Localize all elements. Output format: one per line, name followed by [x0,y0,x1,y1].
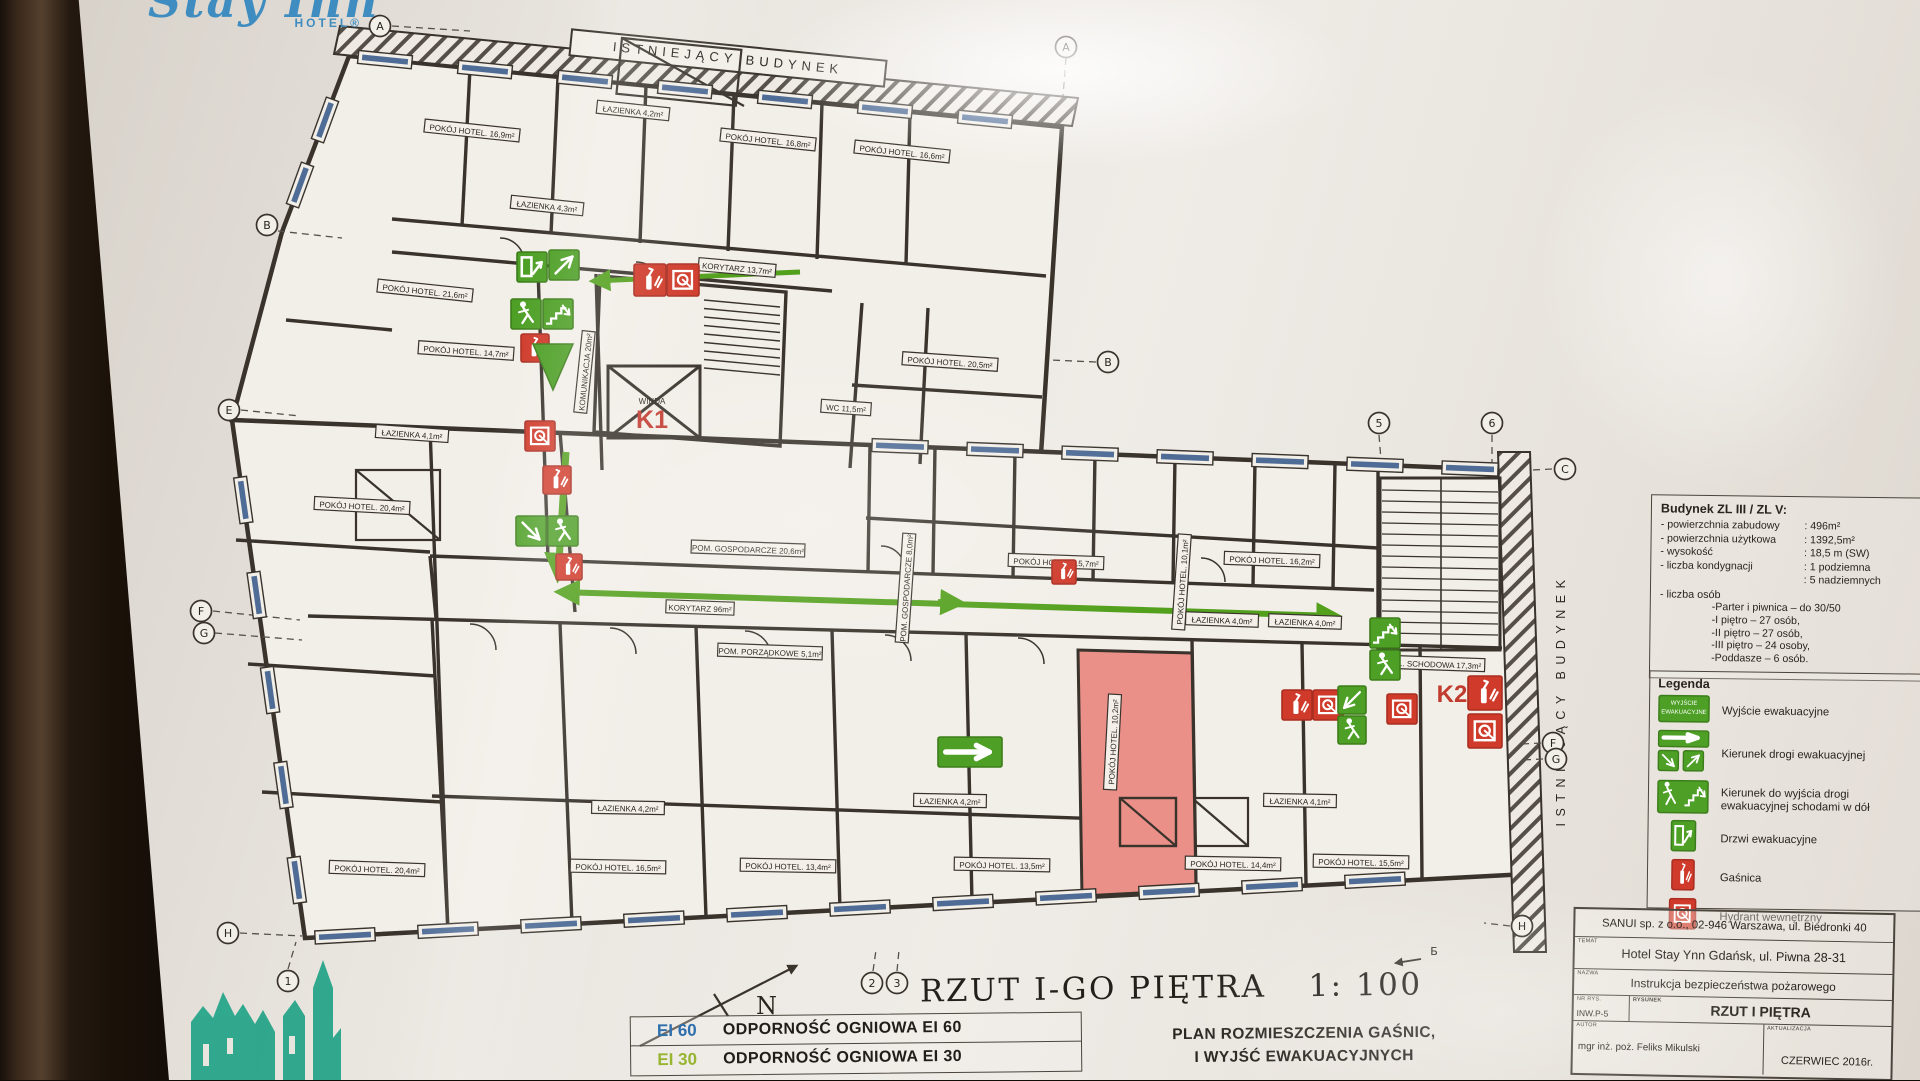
svg-text:ŁAZIENKA 4,1m²: ŁAZIENKA 4,1m² [1269,797,1330,807]
number-field-label: NR RYS. [1577,996,1601,1002]
author-field-label: AUTOR [1576,1022,1597,1028]
grid-axis-bubble: H [1512,916,1533,937]
room-label: POKÓJ HOTEL. 14,4m² [1185,856,1281,871]
direction-arrows-icon [1657,729,1714,779]
legend-item-label: Kierunek do wyjścia drogi ewakuacyjnej s… [1721,787,1917,814]
city-watermark [191,960,341,1080]
fire-resistance-row: EI 60ODPORNOŚĆ OGNIOWA EI 60 [631,1013,1081,1047]
grid-axis-bubble: 5 [1369,413,1390,434]
extinguisher-icon [634,264,666,296]
window-strip [624,911,685,927]
fire-resistance-box: EI 60ODPORNOŚĆ OGNIOWA EI 60EI 30ODPORNO… [630,1012,1083,1077]
hydrant-icon [1387,694,1417,724]
fire-resistance-row: EI 30ODPORNOŚĆ OGNIOWA EI 30 [631,1042,1081,1075]
extinguisher-icon [1656,858,1712,898]
extinguisher-icon [1282,690,1312,720]
svg-text:ŁAZIENKA 4,2m²: ŁAZIENKA 4,2m² [919,797,980,807]
window-strip [1442,461,1498,476]
evac-direction-sign-icon [938,737,1002,767]
svg-text:A: A [1062,41,1070,54]
svg-text:POKÓJ HOTEL. 13,5m²: POKÓJ HOTEL. 13,5m² [959,861,1045,871]
grid-axis-bubble: G [1546,749,1567,770]
photo-of-evacuation-plan: { "colors":{"evac_green":"#4d9f25","alar… [0,0,1920,1080]
title-block: SANUI sp. z o.o., 02-946 Warszawa, ul. B… [1570,907,1895,1081]
fire-resistance-label: ODPORNOŚĆ OGNIOWA EI 60 [723,1019,962,1040]
plan-subtitle-line1: PLAN ROZMIESZCZENIA GAŚNIC, [1158,1021,1450,1047]
exit-man-sign-icon [548,516,578,546]
plan-subtitle: PLAN ROZMIESZCZENIA GAŚNIC, I WYJŚĆ EWAK… [1158,1021,1450,1070]
window-strip [933,894,994,910]
window-strip [872,439,928,454]
existing-building-right-label: ISTNIEJĄCY BUDYNEK [1554,574,1568,827]
svg-text:C: C [1561,463,1569,476]
grid-axis-bubble: 2 [862,973,883,994]
stairwell-k1-label: K1 [636,406,668,434]
building-info-row: : 5 nadziemnych [1660,573,1920,590]
grid-axis-bubble: Б [1430,945,1438,958]
window-strip [1157,450,1213,465]
stairs-down-icon [1657,778,1713,820]
window-strip [1252,454,1308,469]
plan-sheet-paper: ISTNIEJĄCY BUDYNEK ISTNIEJĄCY BUDYNEK [0,0,1920,1080]
doc-field-label: NAZWA [1577,970,1598,976]
svg-text:F: F [198,605,204,618]
room-label: WC 11,5m² [821,399,872,415]
svg-text:6: 6 [1489,417,1496,430]
stairs-down-sign-icon [543,299,573,329]
grid-axis-bubble: 1 [278,971,299,992]
grid-axis-bubble: G [194,623,215,644]
hydrant-icon [525,421,555,451]
evac-door-icon [1656,819,1712,859]
section-marker-arrow [1396,959,1421,963]
evac-direction-sign-icon [1338,686,1366,714]
room-label: POKÓJ HOTEL. 20,4m² [329,860,425,876]
elevator-caption: WINDA [639,397,666,406]
grid-axis-bubble: E [219,400,240,421]
window-strip [830,900,891,916]
floor-title-scale: 1: 100 [1308,966,1423,1004]
legend-item-label: Kierunek drogi ewakuacyjnej [1721,748,1865,762]
svg-text:ŁAZIENKA 4,2m²: ŁAZIENKA 4,2m² [597,804,658,814]
room-label: ŁAZIENKA 4,1m² [1264,793,1337,807]
building-info-title: Budynek ZL III / ZL V: [1661,501,1920,518]
room-label: KORYTARZ 96m² [666,600,735,615]
room-label: ŁAZIENKA 4,2m² [914,793,987,807]
svg-text:3: 3 [894,977,901,990]
svg-text:B: B [263,219,271,232]
object-line: Hotel Stay Ynn Gdańsk, ul. Piwna 28-31 [1574,937,1893,974]
grid-axis-bubble: C [1555,459,1576,480]
svg-text:POKÓJ HOTEL. 14,4m²: POKÓJ HOTEL. 14,4m² [1190,860,1276,870]
exit-man-sign-icon [511,299,541,329]
room-label: ŁAZIENKA 4,0m² [1185,612,1258,628]
room-label: ŁAZIENKA 4,2m² [592,800,665,814]
exit-man-sign-icon [1338,716,1366,744]
hydrant-icon [667,264,699,296]
evac-door-sign-icon [517,252,547,282]
grid-axis-bubble: 6 [1482,413,1503,434]
room-label: ŁAZIENKA 4,0m² [1268,614,1341,630]
drawing-name: RZUT I PIĘTRA [1710,1002,1811,1020]
svg-text:POKÓJ HOTEL. 15,5m²: POKÓJ HOTEL. 15,5m² [1318,858,1404,868]
window-strip [727,905,788,921]
legend-item: WYJŚCIEEWAKUACYJNEWyjście ewakuacyjne [1658,692,1918,732]
svg-text:1: 1 [285,975,292,988]
room-label: POKÓJ HOTEL. 13,4m² [740,858,836,873]
legend-item: Gaśnica [1656,858,1916,900]
fire-resistance-code: EI 30 [631,1049,723,1070]
room-label: KL. SCHODOWA 17,3m² [1389,655,1485,671]
legend-item: Kierunek do wyjścia drogi ewakuacyjnej s… [1657,778,1917,822]
legend-item: Kierunek drogi ewakuacyjnej [1657,729,1918,781]
extinguisher-icon [1052,560,1076,584]
room-label: POKÓJ HOTEL. 13,5m² [954,857,1050,872]
svg-text:Б: Б [1430,945,1438,958]
svg-text:B: B [1104,356,1112,369]
svg-text:POKÓJ HOTEL. 16,5m²: POKÓJ HOTEL. 16,5m² [575,863,661,873]
room-label: POKÓJ HOTEL. 16,5m² [570,859,666,874]
extinguisher-icon [556,554,582,580]
fire-resistance-code: EI 60 [631,1020,723,1041]
update-field-label: AKTUALIZACJA [1767,1026,1811,1033]
grid-axis-bubble: H [218,923,239,944]
svg-text:H: H [1518,920,1526,933]
persons-list: -Parter i piwnica – do 30/50-I piętro – … [1659,600,1920,667]
object-field-label: TEMAT [1578,938,1598,944]
extinguisher-icon [543,466,571,494]
grid-axis-bubble: B [1098,352,1119,373]
drawing-field-label: RYSUNEK [1633,997,1662,1004]
legend-panel: Legenda WYJŚCIEEWAKUACYJNEWyjście ewakua… [1647,670,1920,911]
fire-resistance-label: ODPORNOŚĆ OGNIOWA EI 30 [723,1048,962,1069]
evac-direction-sign-icon [516,516,546,546]
grid-axis-bubble: 3 [887,973,908,994]
hotel-logo-sub: HOTEL® [294,16,362,30]
window-strip [418,922,479,938]
svg-text:G: G [200,627,209,640]
svg-text:EWAKUACYJNE: EWAKUACYJNE [1661,709,1707,716]
extinguisher-icon [1468,676,1502,710]
exit-sign-icon: WYJŚCIEEWAKUACYJNE [1658,692,1714,730]
window-strip [1062,446,1118,461]
legend-title: Legenda [1658,676,1918,693]
svg-text:G: G [1552,753,1561,766]
window-strip [1036,889,1097,905]
grid-axis-bubble: A [1056,37,1077,58]
window-strip [521,917,582,933]
legend-item-label: Wyjście ewakuacyjne [1722,705,1829,719]
update-date: CZERWIEC 2016r. [1781,1055,1873,1069]
grid-axis-bubble: B [257,215,278,236]
building-info-panel: Budynek ZL III / ZL V: - powierzchnia za… [1649,494,1920,681]
svg-text:H: H [224,927,232,940]
room-label: POKÓJ HOTEL. 15,5m² [1313,854,1409,869]
svg-text:2: 2 [869,977,876,990]
drawing-number: INW.P-5 [1577,1008,1609,1019]
svg-text:5: 5 [1376,417,1383,430]
legend-item-label: Gaśnica [1720,872,1762,885]
exit-man-sign-icon [1370,650,1400,680]
legend-items: WYJŚCIEEWAKUACYJNEWyjście ewakuacyjneKie… [1655,692,1918,939]
window-strip [1242,878,1303,894]
window-strip [967,442,1023,457]
building-info-rows: - powierzchnia zabudowy: 496m²- powierzc… [1660,518,1920,589]
grid-axis-bubble: F [191,601,212,622]
legend-item: Drzwi ewakuacyjne [1656,819,1916,861]
window-strip [315,928,376,944]
stairs-down-sign-icon [1370,618,1400,648]
svg-text:POKÓJ HOTEL. 13,4m²: POKÓJ HOTEL. 13,4m² [745,862,831,872]
window-strip [1347,457,1403,472]
hotel-logo: Stay Inn HOTEL® [140,0,390,42]
stairwell-k2-label: K2 [1437,681,1468,708]
plan-subtitle-line2: I WYJŚĆ EWAKUACYJNYCH [1158,1044,1450,1070]
window-strip [1345,872,1406,888]
author-name: mgr inż. poż. Feliks Mikulski [1578,1041,1700,1054]
room-label: POKÓJ HOTEL. 16,2m² [1224,551,1320,567]
hydrant-icon [1468,714,1502,748]
persons-line: -Poddasze – 6 osób. [1659,652,1920,668]
legend-item-label: Drzwi ewakuacyjne [1720,833,1817,847]
floor-title: RZUT I-GO PIĘTRA1: 100 [920,966,1423,1009]
highlighted-room [1078,650,1196,896]
floor-title-text: RZUT I-GO PIĘTRA [920,969,1267,1010]
evac-direction-sign-icon [549,250,579,280]
svg-text:E: E [226,404,233,417]
window-strip [1139,883,1200,899]
